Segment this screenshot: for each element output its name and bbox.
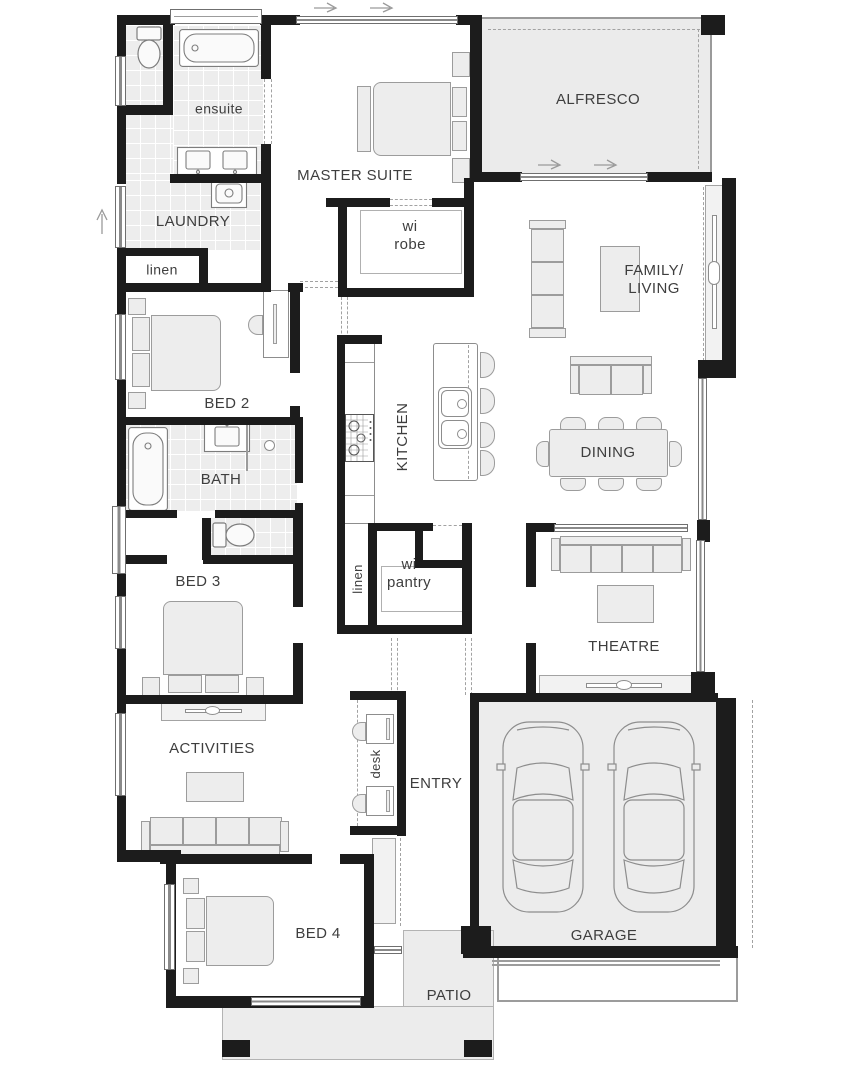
sofa-arm-icon bbox=[643, 365, 652, 394]
pillow-icon bbox=[186, 898, 205, 929]
pillow-icon bbox=[132, 317, 150, 351]
bar-stool-icon bbox=[480, 388, 495, 414]
wall-segment bbox=[462, 523, 472, 633]
bar-stool-icon bbox=[480, 352, 495, 378]
wall-segment bbox=[470, 693, 718, 702]
room-label-theatre: THEATRE bbox=[588, 638, 660, 656]
sliding-door-icon bbox=[115, 186, 126, 248]
window-line bbox=[174, 16, 258, 17]
tv-unit-icon bbox=[161, 702, 266, 722]
wall-segment bbox=[117, 283, 267, 292]
island-bench-icon bbox=[433, 343, 497, 483]
wall-segment bbox=[470, 15, 482, 182]
wall-segment bbox=[350, 826, 406, 835]
sofa-back-icon bbox=[570, 356, 652, 365]
wall-segment bbox=[470, 698, 479, 930]
ceiling-dash-line bbox=[391, 638, 392, 695]
room-label-entry: ENTRY bbox=[410, 775, 463, 793]
dining-chair-icon bbox=[669, 441, 682, 467]
slide-arrow-icon bbox=[368, 1, 398, 13]
entry-closet-icon bbox=[372, 838, 396, 924]
shower-rose-icon bbox=[264, 440, 275, 451]
room-label-wi-pantry: wi pantry bbox=[378, 556, 440, 592]
wall-segment bbox=[377, 523, 433, 531]
sofa-cushion-icon bbox=[531, 295, 564, 328]
garage-door-line bbox=[492, 960, 720, 962]
room-label-master-suite: MASTER SUITE bbox=[297, 167, 413, 185]
bathtub-icon bbox=[128, 427, 168, 511]
toilet-icon bbox=[212, 520, 256, 550]
room-label-ensuite: ensuite bbox=[195, 101, 243, 118]
bathtub-icon bbox=[179, 29, 259, 67]
dining-chair-icon bbox=[560, 478, 586, 491]
car-icon bbox=[497, 712, 589, 920]
window-icon bbox=[115, 713, 126, 796]
wall-segment bbox=[163, 15, 173, 115]
bench-line bbox=[345, 495, 374, 496]
coffee-table-icon bbox=[186, 772, 244, 802]
wall-segment bbox=[117, 105, 173, 115]
wall-segment bbox=[160, 854, 312, 864]
wall-segment bbox=[716, 698, 736, 956]
slide-arrow-icon bbox=[312, 1, 342, 13]
shower-screen-icon bbox=[246, 425, 248, 471]
sofa-cushion-icon bbox=[531, 262, 564, 295]
toilet-icon bbox=[134, 26, 164, 70]
office-chair-icon bbox=[352, 722, 366, 741]
chaise-sofa-icon bbox=[528, 220, 568, 340]
wall-segment bbox=[364, 864, 374, 942]
opening-dash-line bbox=[433, 525, 462, 526]
wall-segment bbox=[478, 172, 522, 182]
sofa-cushion-icon bbox=[653, 545, 682, 573]
wall-segment bbox=[526, 523, 536, 587]
window-icon bbox=[698, 378, 707, 520]
wall-segment bbox=[293, 513, 303, 607]
monitor-icon bbox=[386, 718, 390, 740]
door-swing-arrow-icon bbox=[96, 206, 108, 236]
room-label-dining: DINING bbox=[581, 444, 636, 462]
wall-segment bbox=[117, 248, 126, 314]
wall-segment bbox=[701, 15, 725, 35]
garage-eave-dash-line bbox=[752, 700, 753, 948]
window-icon bbox=[164, 884, 175, 970]
wall-segment bbox=[338, 198, 347, 297]
room-patio-floor-b bbox=[222, 1006, 494, 1060]
wall-segment bbox=[202, 518, 211, 560]
wall-segment bbox=[261, 15, 271, 79]
wall-segment bbox=[117, 417, 303, 425]
pillow-icon bbox=[186, 931, 205, 962]
tv-niche-dash-line bbox=[703, 187, 704, 361]
sofa-icon bbox=[570, 356, 652, 398]
bedside-table-icon bbox=[128, 392, 146, 409]
alfresco-eave-dash-line bbox=[488, 29, 700, 30]
bedside-table-icon bbox=[246, 677, 264, 696]
room-label-linen-lower: linen bbox=[350, 564, 366, 593]
bed-bench-icon bbox=[357, 86, 371, 152]
sofa-cushion-icon bbox=[560, 545, 591, 573]
sofa-arm-icon bbox=[529, 220, 566, 229]
window-icon bbox=[115, 596, 126, 649]
wall-segment bbox=[646, 172, 712, 182]
office-chair-icon bbox=[248, 315, 263, 335]
room-label-bath: BATH bbox=[201, 471, 242, 489]
sofa-cushion-icon bbox=[579, 365, 611, 395]
sofa-arm-icon bbox=[570, 365, 579, 394]
wall-segment bbox=[338, 288, 474, 297]
room-label-bed3: BED 3 bbox=[175, 573, 220, 591]
room-label-kitchen: KITCHEN bbox=[394, 403, 412, 472]
sofa-arm-icon bbox=[280, 821, 289, 852]
cooktop-icon bbox=[345, 414, 374, 462]
sofa-cushion-icon bbox=[531, 229, 564, 262]
wall-segment bbox=[340, 854, 374, 864]
wall-segment bbox=[461, 926, 491, 954]
car-icon bbox=[608, 712, 700, 920]
pillow-icon bbox=[452, 87, 467, 117]
window-icon bbox=[296, 16, 458, 24]
window-icon bbox=[115, 314, 126, 380]
driveway-line bbox=[736, 958, 738, 1002]
ceiling-dash-line bbox=[465, 638, 466, 695]
wall-segment bbox=[117, 649, 126, 715]
room-label-patio: PATIO bbox=[427, 987, 472, 1005]
sofa-icon bbox=[551, 536, 691, 576]
dining-chair-icon bbox=[536, 441, 549, 467]
entry-robe-dash-line bbox=[400, 838, 401, 926]
opening-dash-line bbox=[264, 79, 265, 144]
wall-segment bbox=[290, 283, 300, 373]
ceiling-dash-line bbox=[471, 638, 472, 695]
bench-line bbox=[345, 362, 374, 363]
ottoman-icon bbox=[597, 585, 654, 623]
pillow-icon bbox=[132, 353, 150, 387]
driveway-line bbox=[497, 958, 499, 1002]
sofa-cushion-icon bbox=[622, 545, 653, 573]
mattress-icon bbox=[373, 82, 451, 156]
bar-stool-icon bbox=[480, 422, 495, 448]
sliding-door-icon bbox=[520, 173, 648, 181]
sofa-cushion-icon bbox=[249, 817, 282, 845]
wall-segment bbox=[698, 360, 736, 378]
wall-segment bbox=[117, 796, 126, 858]
mattress-icon bbox=[206, 896, 274, 966]
room-label-linen-upper: linen bbox=[146, 262, 178, 279]
sofa-arm-icon bbox=[551, 538, 560, 571]
double-bed-icon bbox=[142, 601, 264, 697]
floor-plan: ensuite MASTER SUITE ALFRESCO LAUNDRY li… bbox=[0, 0, 855, 1071]
laundry-trough-icon bbox=[211, 180, 247, 208]
bedside-table-icon bbox=[183, 968, 199, 984]
desk-icon bbox=[352, 712, 396, 746]
office-chair-icon bbox=[352, 794, 366, 813]
sofa-cushion-icon bbox=[150, 817, 183, 845]
wall-segment bbox=[397, 691, 406, 836]
pillow-icon bbox=[205, 675, 239, 693]
wall-segment bbox=[215, 510, 303, 518]
monitor-icon bbox=[386, 790, 390, 812]
room-label-alfresco: ALFRESCO bbox=[556, 91, 640, 109]
wall-segment bbox=[261, 184, 271, 292]
sofa-cushion-icon bbox=[216, 817, 249, 845]
column-icon bbox=[464, 1040, 492, 1057]
tv-icon bbox=[616, 680, 632, 690]
wall-segment bbox=[722, 178, 736, 378]
wall-segment bbox=[125, 555, 167, 564]
opening-dash-line bbox=[271, 79, 272, 144]
sofa-back-icon bbox=[560, 536, 682, 545]
tap-icon bbox=[457, 429, 467, 439]
room-label-bed4: BED 4 bbox=[295, 925, 340, 943]
slide-arrow-icon bbox=[536, 158, 566, 170]
room-label-laundry: LAUNDRY bbox=[156, 213, 230, 231]
wall-segment bbox=[528, 523, 556, 532]
sofa-cushion-icon bbox=[183, 817, 216, 845]
room-label-desk: desk bbox=[368, 749, 384, 778]
dining-chair-icon bbox=[636, 478, 662, 491]
wall-segment bbox=[117, 574, 126, 598]
wall-segment bbox=[117, 380, 126, 506]
double-vanity-icon bbox=[177, 147, 257, 175]
wall-segment bbox=[170, 174, 271, 183]
wall-seg bbox=[697, 520, 710, 542]
opening-dash-line bbox=[390, 205, 432, 206]
opening-dash-line bbox=[300, 281, 338, 282]
mattress-icon bbox=[151, 315, 221, 391]
room-label-wi-robe: wi robe bbox=[388, 218, 432, 254]
opening-dash-line bbox=[390, 199, 432, 200]
room-label-garage: GARAGE bbox=[571, 927, 638, 945]
desk-icon bbox=[352, 784, 396, 820]
room-label-activities: ACTIVITIES bbox=[169, 740, 255, 758]
wall-segment bbox=[464, 178, 474, 290]
ceiling-dash-line bbox=[397, 638, 398, 695]
window-icon bbox=[554, 524, 688, 532]
bar-stool-icon bbox=[480, 450, 495, 476]
window-icon bbox=[115, 56, 126, 106]
wall-segment bbox=[463, 946, 738, 958]
bedside-table-icon bbox=[128, 298, 146, 315]
bedside-table-icon bbox=[142, 677, 160, 696]
wall-segment bbox=[526, 643, 536, 700]
wall-segment bbox=[368, 523, 377, 633]
sofa-cushion-icon bbox=[611, 365, 643, 395]
driveway-line bbox=[497, 1000, 737, 1002]
sofa-arm-icon bbox=[529, 328, 566, 338]
desk-icon bbox=[248, 288, 290, 360]
tv-icon bbox=[205, 706, 220, 715]
wall-segment bbox=[203, 555, 303, 564]
pillow-icon bbox=[452, 121, 467, 151]
wall-segment bbox=[293, 643, 303, 703]
window-icon bbox=[696, 540, 705, 672]
sofa-arm-icon bbox=[141, 821, 150, 852]
pillow-icon bbox=[168, 675, 202, 693]
mattress-icon bbox=[163, 601, 243, 675]
column-icon bbox=[222, 1040, 250, 1057]
double-bed-icon bbox=[183, 878, 278, 988]
tv-icon bbox=[708, 261, 720, 285]
wall-segment bbox=[125, 510, 177, 518]
wall-segment bbox=[337, 625, 472, 634]
alfresco-eave-dash-line bbox=[698, 29, 699, 169]
sofa-cushion-icon bbox=[591, 545, 622, 573]
wall-segment bbox=[117, 695, 303, 704]
window-icon bbox=[112, 506, 126, 574]
garage-door-line bbox=[492, 964, 720, 966]
wall-segment bbox=[125, 248, 201, 256]
wall-segment bbox=[295, 417, 303, 483]
dining-chair-icon bbox=[598, 478, 624, 491]
tap-icon bbox=[457, 399, 467, 409]
front-door-icon bbox=[374, 946, 402, 954]
wall-segment bbox=[337, 340, 345, 525]
room-label-family-living: FAMILY/ LIVING bbox=[614, 262, 694, 298]
wall-segment bbox=[326, 198, 390, 207]
room-hall-tiled-floor bbox=[125, 113, 173, 180]
bedside-table-icon bbox=[183, 878, 199, 894]
room-label-bed2: BED 2 bbox=[204, 395, 249, 413]
monitor-icon bbox=[273, 304, 277, 344]
bedside-table-icon bbox=[452, 52, 470, 77]
wall-segment bbox=[337, 523, 345, 633]
opening-dash-line bbox=[300, 287, 338, 288]
sofa-arm-icon bbox=[682, 538, 691, 571]
window-icon bbox=[251, 997, 361, 1006]
slide-arrow-icon bbox=[592, 158, 622, 170]
wall-segment bbox=[364, 940, 374, 1008]
